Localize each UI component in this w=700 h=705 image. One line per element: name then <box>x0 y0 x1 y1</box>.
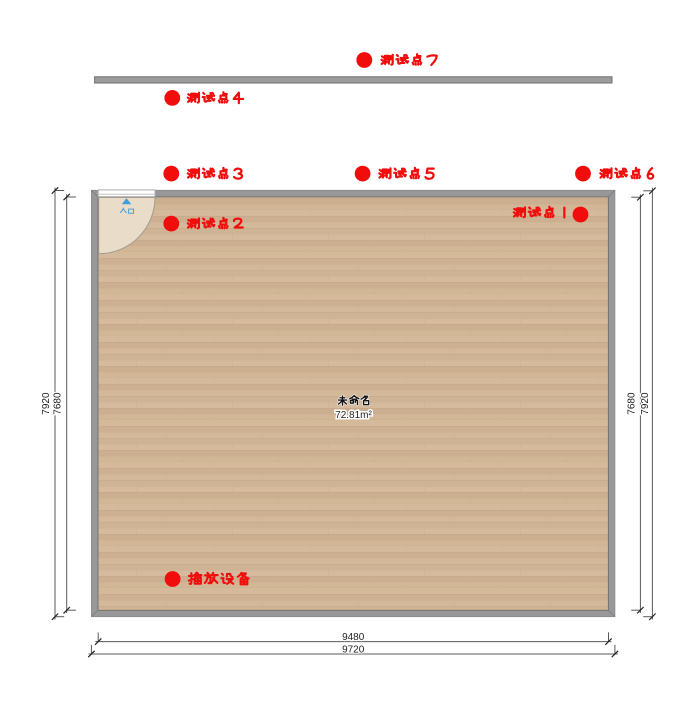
svg-text:72.81m²: 72.81m² <box>335 410 372 421</box>
svg-text:7680: 7680 <box>53 392 64 415</box>
svg-text:9480: 9480 <box>342 632 365 643</box>
svg-text:9720: 9720 <box>342 644 365 655</box>
svg-text:7680: 7680 <box>626 392 637 415</box>
svg-text:7920: 7920 <box>640 392 651 415</box>
svg-text:7920: 7920 <box>41 392 52 415</box>
